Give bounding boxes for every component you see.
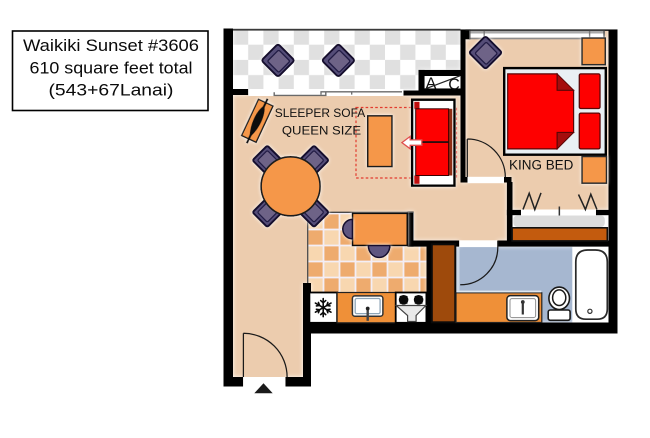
svg-text:KING BED: KING BED: [509, 157, 574, 172]
svg-text:610 square feet total: 610 square feet total: [30, 59, 193, 77]
svg-text:QUEEN SIZE: QUEEN SIZE: [282, 126, 362, 138]
svg-text:A: A: [426, 76, 437, 93]
svg-text:C: C: [448, 77, 460, 94]
svg-text:(543+67Lanai): (543+67Lanai): [49, 82, 174, 100]
svg-text:SLEEPER SOFA: SLEEPER SOFA: [275, 108, 366, 120]
svg-text:Waikiki Sunset #3606: Waikiki Sunset #3606: [23, 37, 199, 55]
